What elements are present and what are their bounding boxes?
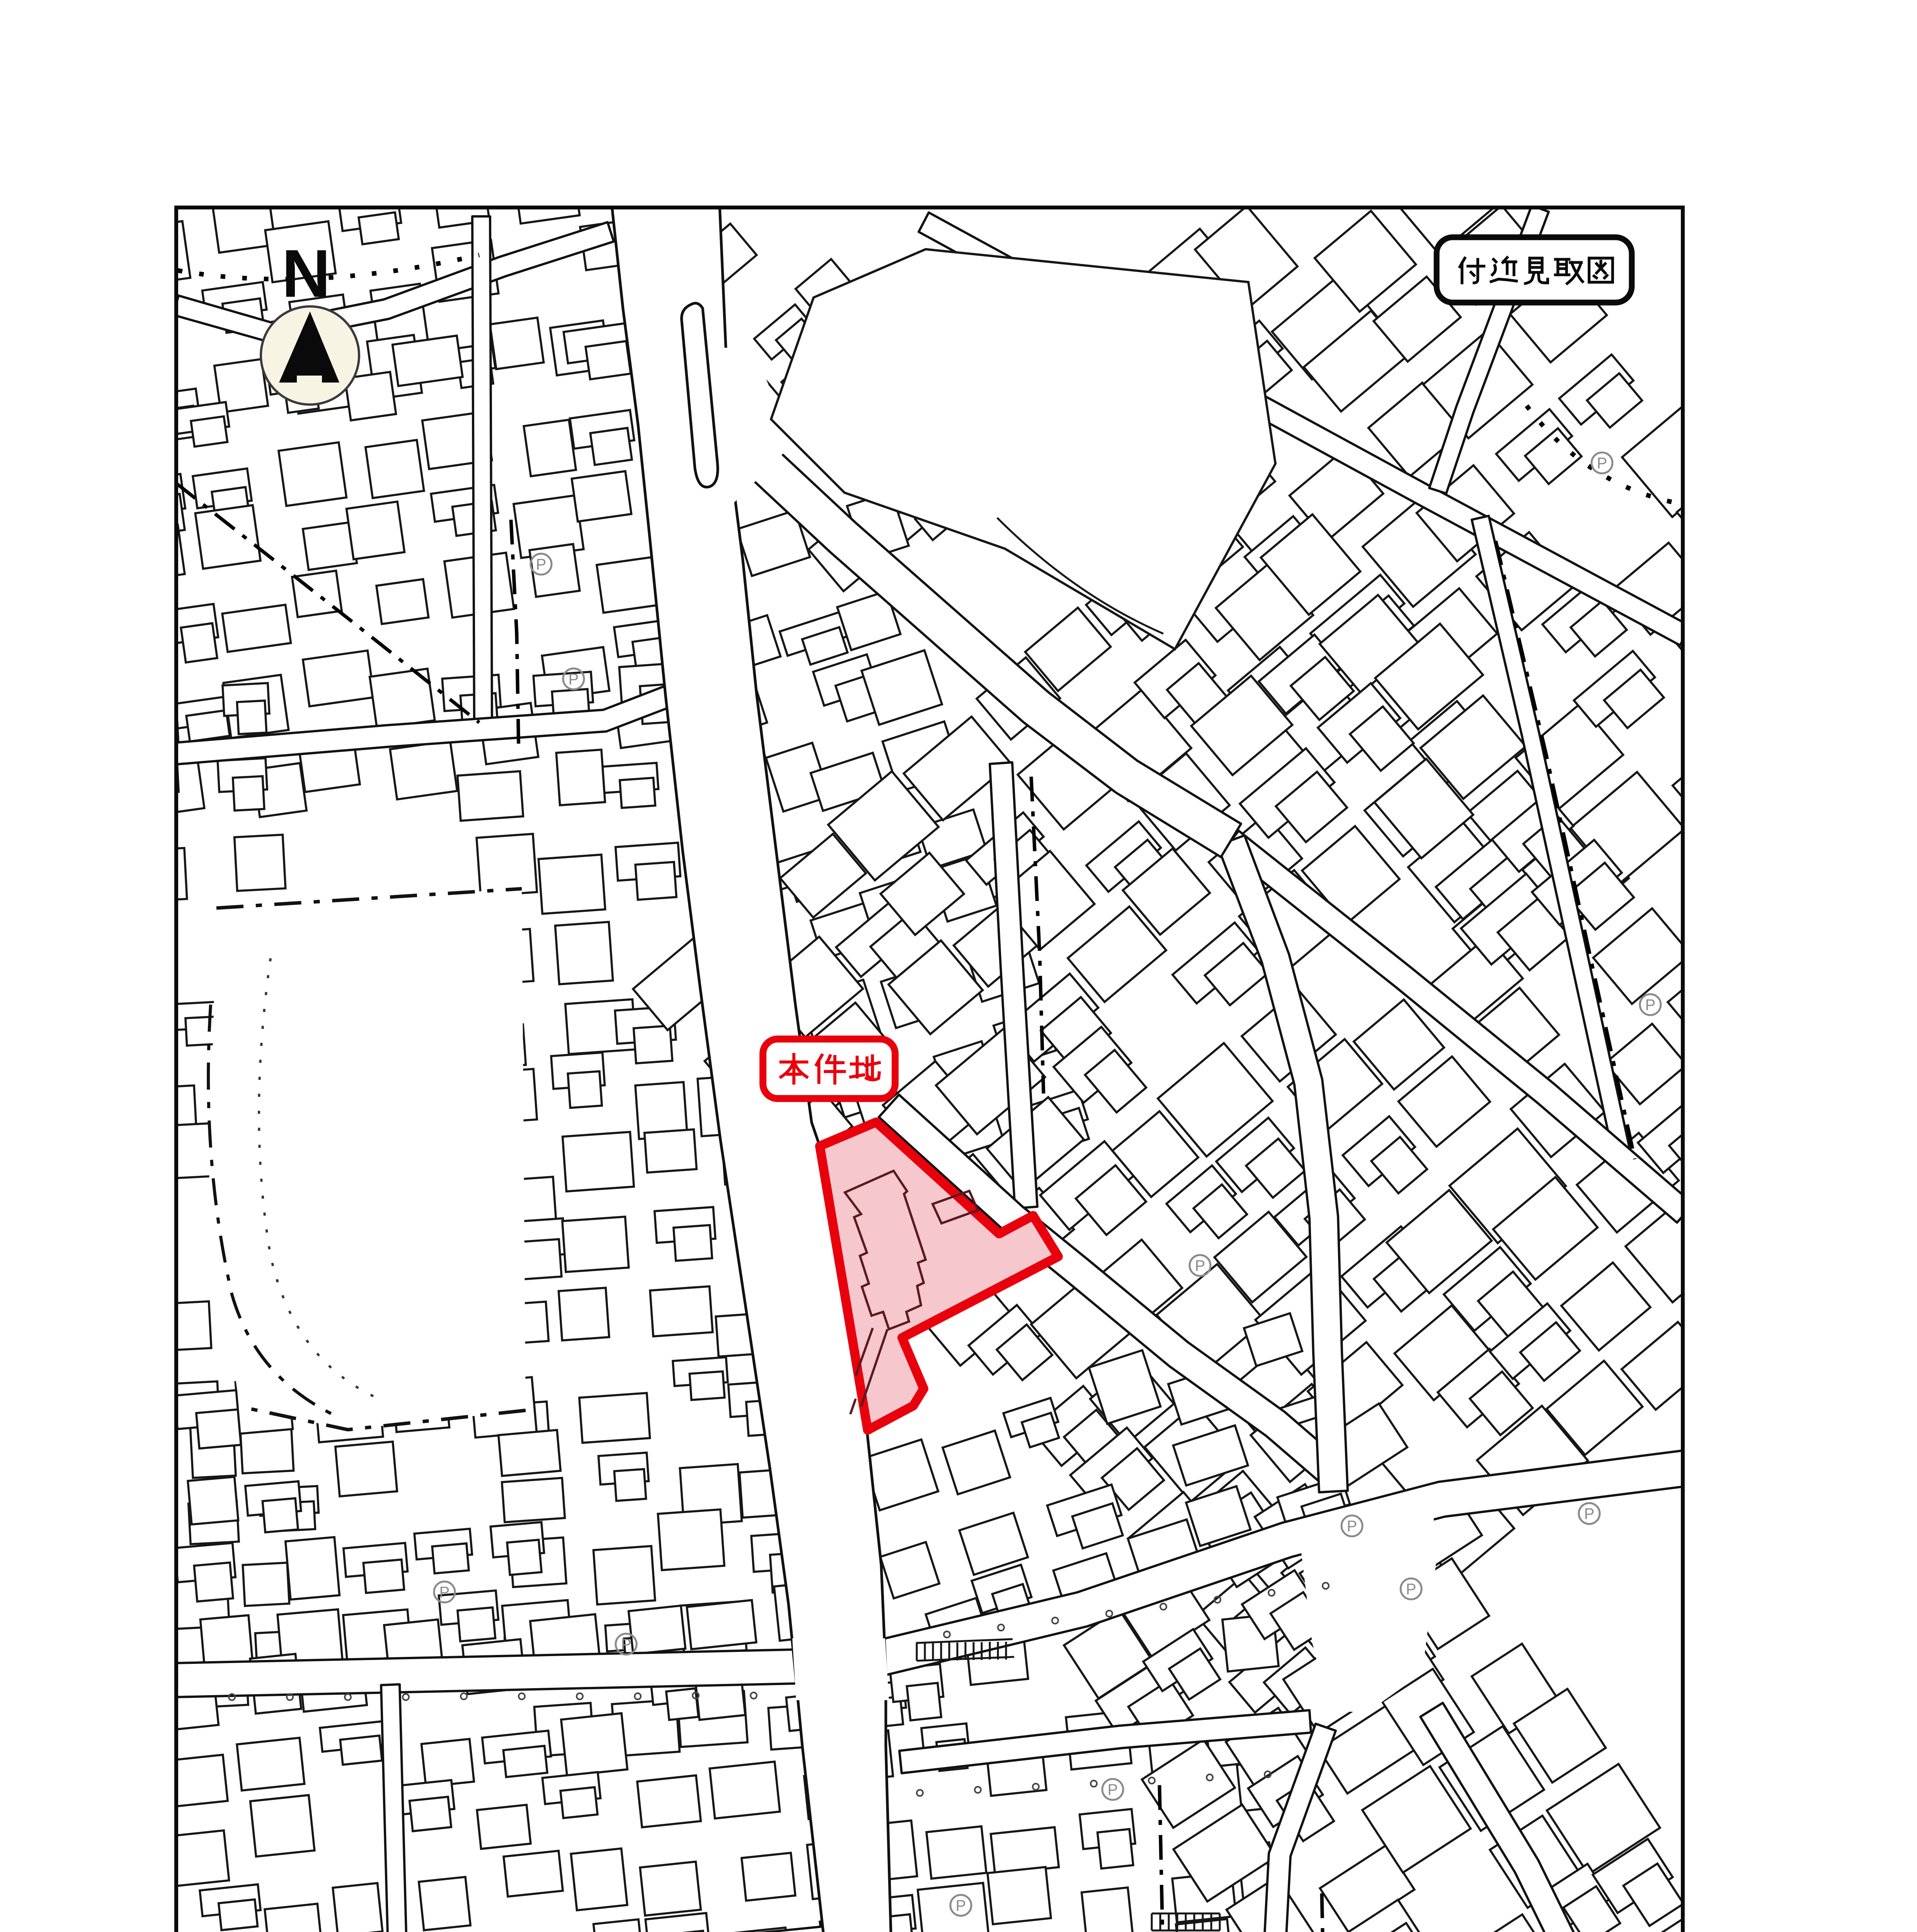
svg-text:P: P — [439, 1584, 450, 1601]
svg-text:N: N — [282, 236, 330, 311]
svg-text:P: P — [1347, 1518, 1357, 1535]
svg-text:P: P — [956, 1897, 966, 1914]
svg-text:P: P — [1584, 1505, 1595, 1522]
svg-text:P: P — [536, 556, 546, 573]
svg-text:P: P — [1406, 1581, 1416, 1598]
svg-text:P: P — [621, 1636, 632, 1653]
svg-text:P: P — [1597, 455, 1607, 472]
svg-text:P: P — [1108, 1781, 1118, 1798]
svg-text:P: P — [1645, 997, 1656, 1014]
svg-text:P: P — [1195, 1257, 1205, 1274]
svg-text:P: P — [569, 671, 579, 688]
